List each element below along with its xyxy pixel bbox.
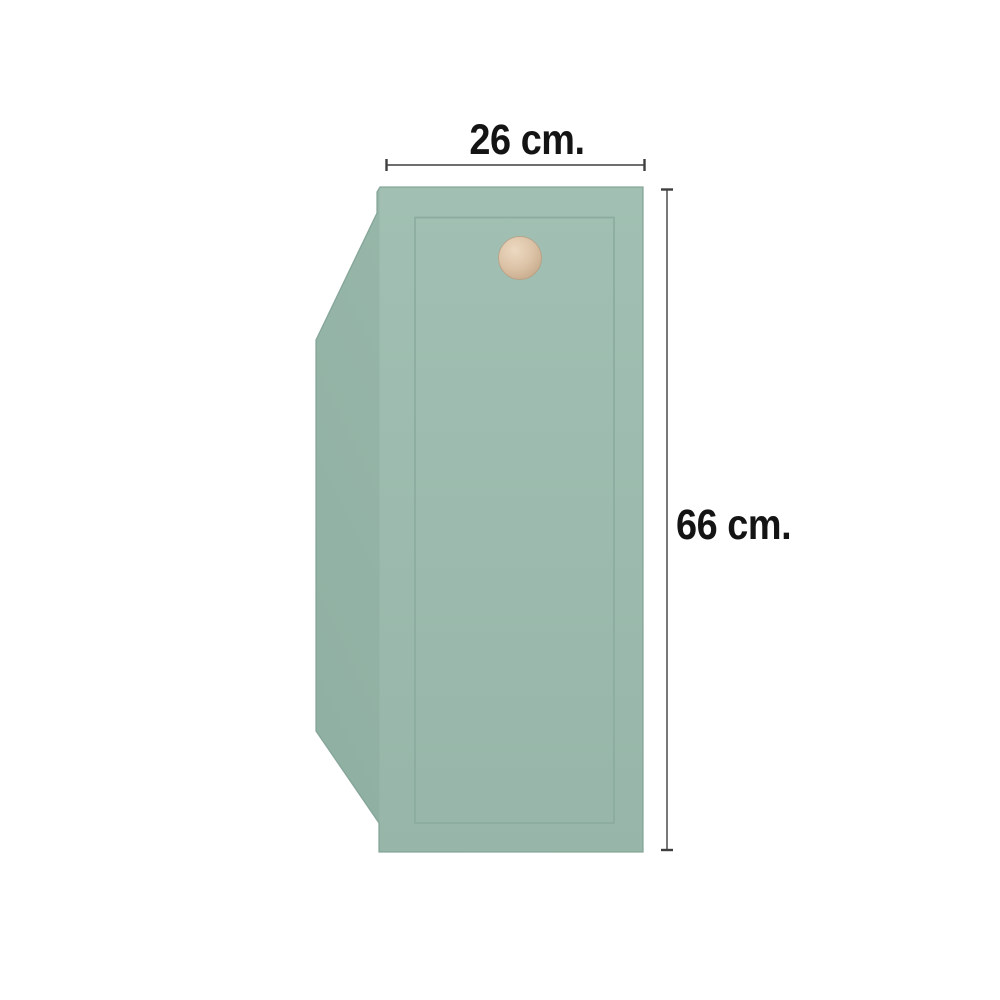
product-dimension-diagram: 26 cm. 66 cm. [0,0,1000,1000]
width-dimension-label: 26 cm. [469,119,584,162]
cabinet-front-door [380,188,643,852]
height-dimension-label: 66 cm. [676,504,791,547]
door-knob [499,237,542,280]
height-dimension-line [661,190,673,851]
